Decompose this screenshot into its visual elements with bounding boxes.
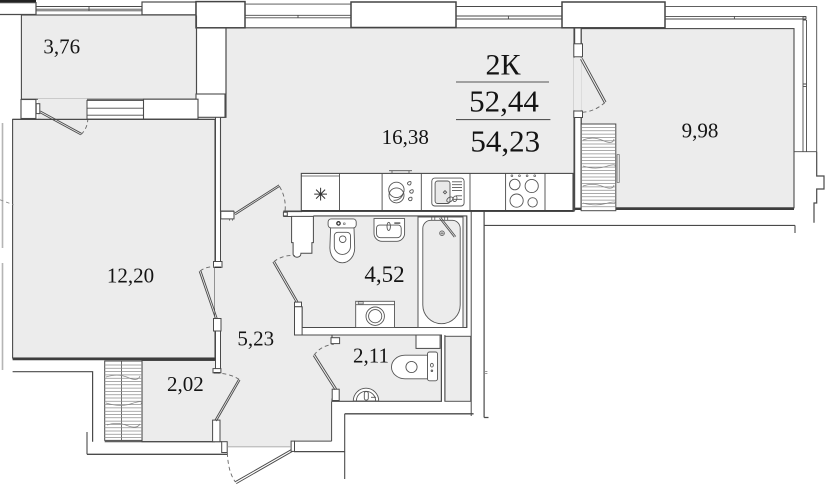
svg-text:4,52: 4,52 (364, 262, 404, 287)
svg-text:3,76: 3,76 (43, 35, 80, 59)
svg-text:16,38: 16,38 (382, 125, 429, 149)
svg-text:12,20: 12,20 (107, 263, 154, 287)
svg-text:52,44: 52,44 (469, 84, 539, 119)
svg-text:2,02: 2,02 (167, 372, 204, 396)
svg-text:2,11: 2,11 (353, 343, 389, 367)
svg-text:2К: 2К (485, 49, 521, 82)
svg-text:9,98: 9,98 (682, 119, 719, 143)
svg-text:54,23: 54,23 (470, 123, 540, 158)
svg-text:5,23: 5,23 (237, 326, 274, 350)
